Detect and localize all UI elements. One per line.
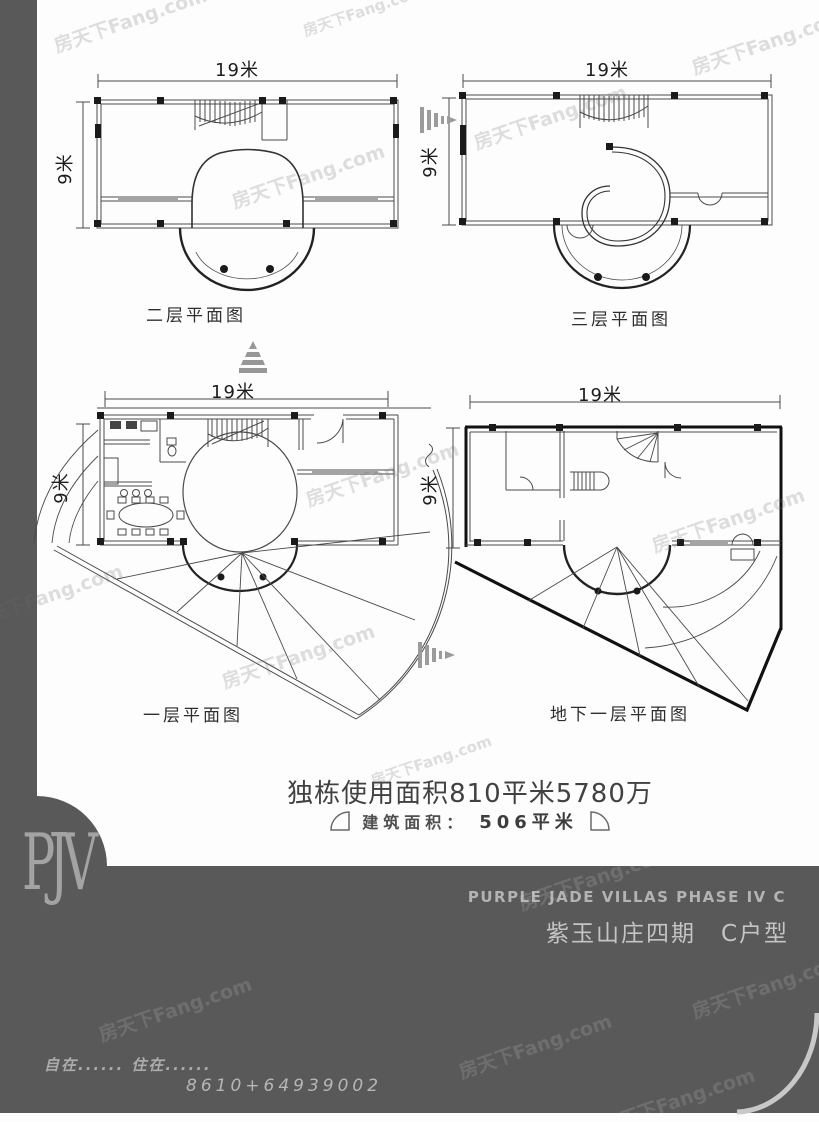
floorplan-title-b1: 地下一层平面图 xyxy=(525,700,715,725)
project-title-cn: 紫玉山庄四期 C户型 xyxy=(546,914,789,948)
dim-width-label-1f: 19米 xyxy=(173,378,293,404)
built-area-label: 建筑面积： xyxy=(362,809,467,833)
pyramid-icon xyxy=(238,341,268,375)
built-area-value: 506平米 xyxy=(479,808,578,834)
arrow-right-icon xyxy=(420,106,460,134)
floorplan-3f-drawing xyxy=(442,74,772,288)
quarter-arc-left-icon xyxy=(330,811,350,831)
floorplan-linework xyxy=(0,0,819,1122)
floorplan-2f-drawing xyxy=(76,74,399,290)
dim-height-label-3f: 9米 xyxy=(416,130,442,194)
slogan-text: 自在...... 住在...... xyxy=(44,1054,212,1075)
built-area-row: 建筑面积： 506平米 xyxy=(205,808,735,834)
dim-width-label-3f: 19米 xyxy=(547,56,667,82)
floorplan-title-2f: 二层平面图 xyxy=(101,301,291,326)
dim-width-label-2f: 19米 xyxy=(177,56,297,82)
dim-height-label-b1: 9米 xyxy=(416,458,442,522)
dim-height-label-1f: 9米 xyxy=(47,456,73,520)
dim-width-label-b1: 19米 xyxy=(540,381,660,407)
usable-area-text: 独栋使用面积810平米5780万 xyxy=(205,773,735,810)
brochure-page: 19米 9米 19米 9米 19米 9米 19米 9米 二层平面图 三层平面图 … xyxy=(0,0,819,1122)
floorplan-1f-drawing xyxy=(34,391,452,719)
pjv-logo: PJV xyxy=(22,824,92,902)
arrow-right-icon xyxy=(418,641,458,669)
dim-height-label-2f: 9米 xyxy=(51,137,77,201)
floorplan-b1-drawing xyxy=(446,395,782,710)
phone-number: 8610+64939002 xyxy=(186,1076,382,1096)
quarter-arc-right-icon xyxy=(590,811,610,831)
floorplan-title-1f: 一层平面图 xyxy=(98,701,288,726)
project-title-en: PURPLE JADE VILLAS PHASE IV C xyxy=(468,888,786,906)
floorplan-title-3f: 三层平面图 xyxy=(526,305,716,330)
